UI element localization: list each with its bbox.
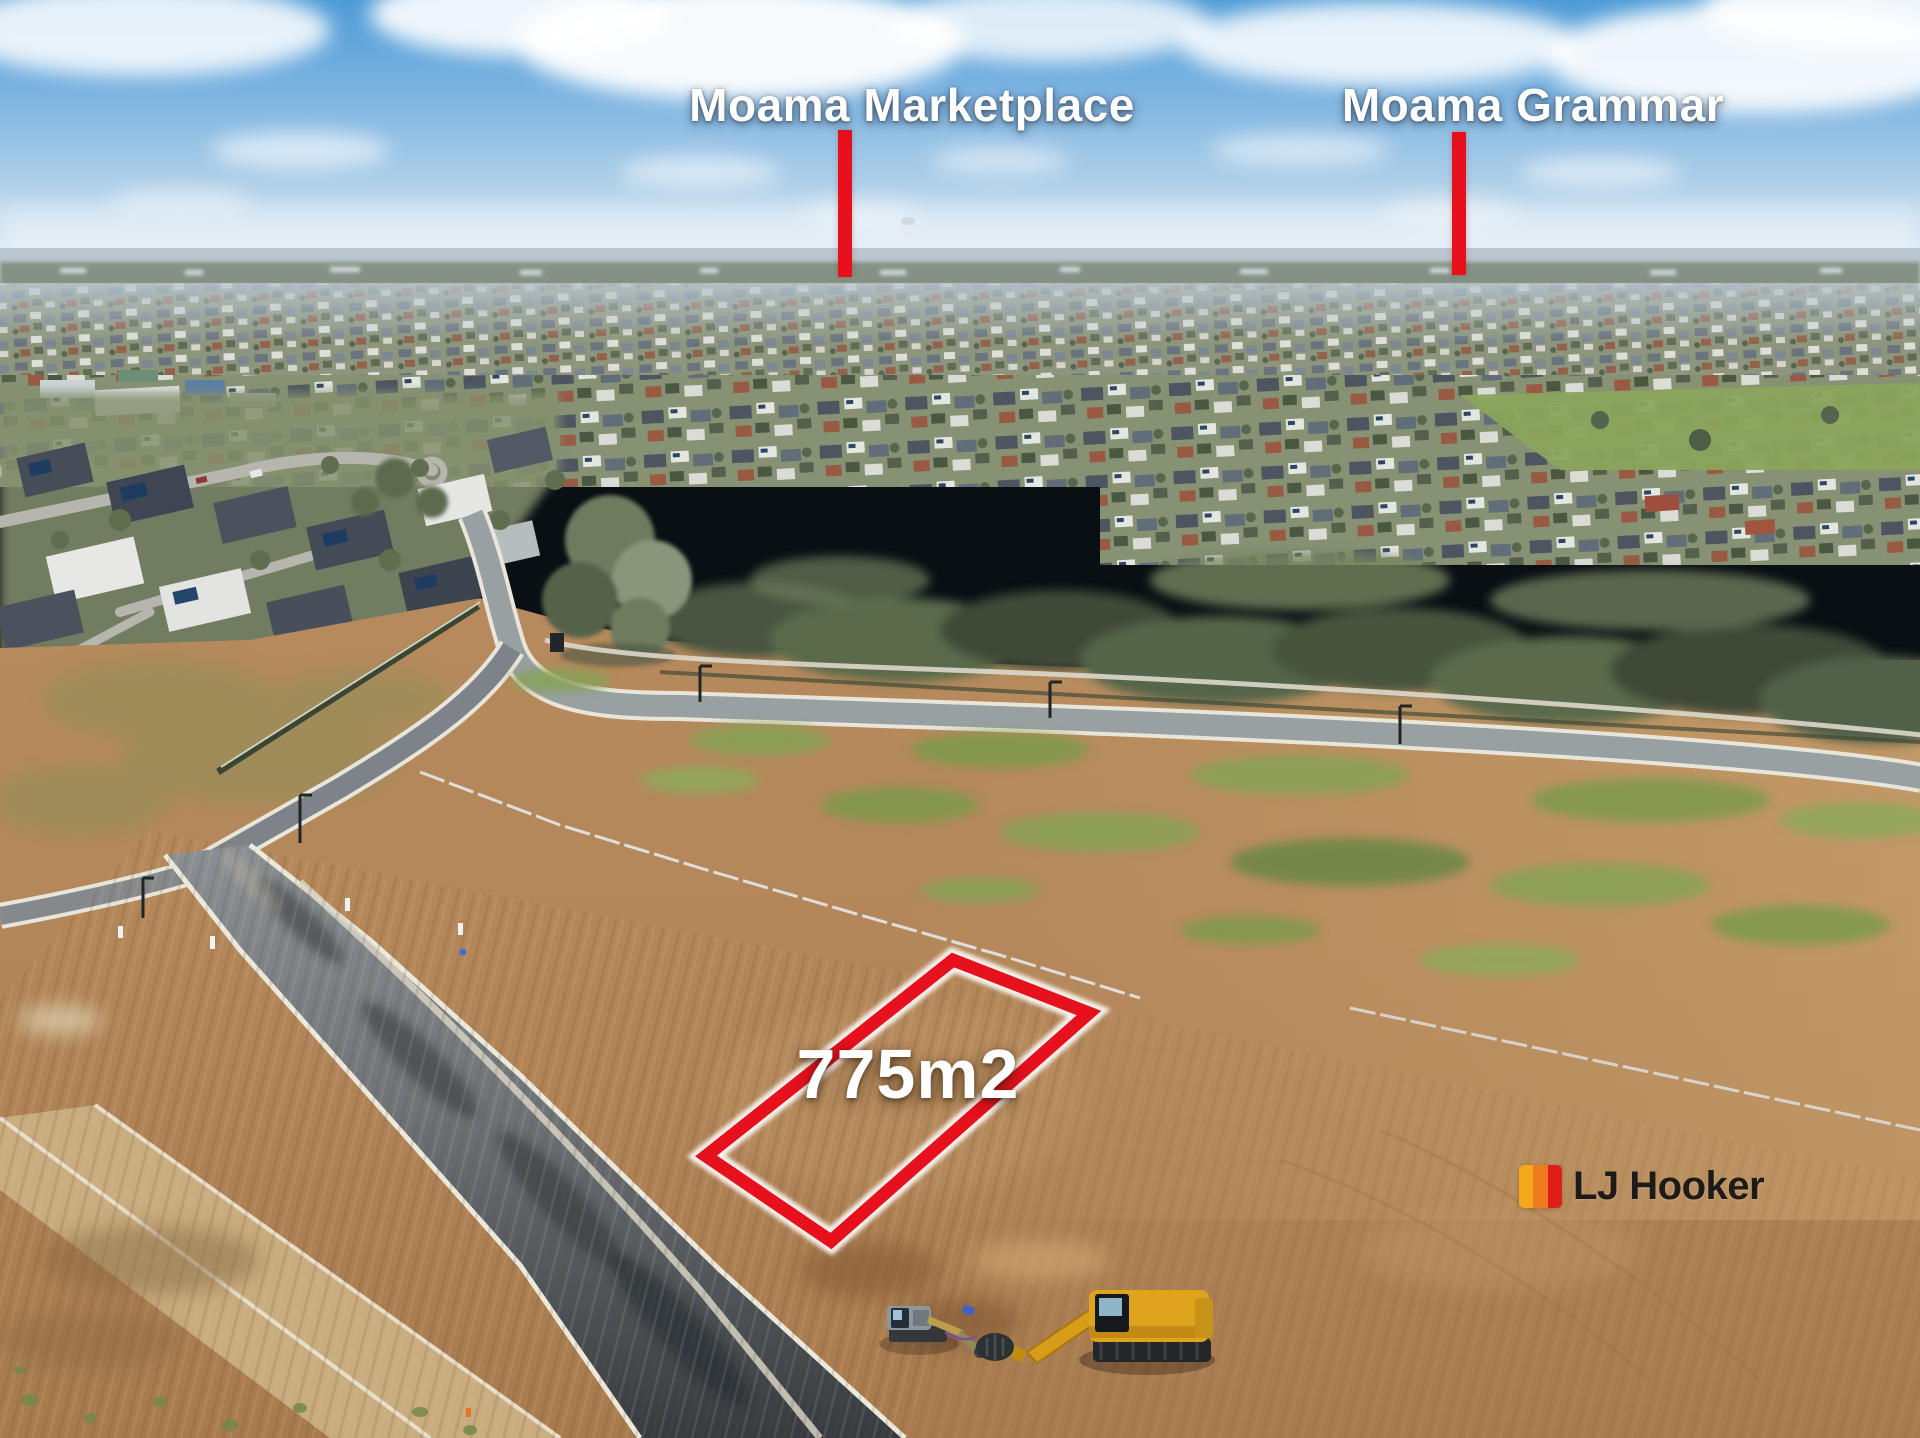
- marker-line-moama-marketplace: [838, 130, 852, 277]
- lj-hooker-logo-text: LJ Hooker: [1573, 1164, 1764, 1209]
- real-estate-aerial-photo: { "annotations": { "marker_color": "#e71…: [0, 0, 1920, 1438]
- logo-bar-orange: [1533, 1165, 1547, 1208]
- aerial-photo-background: [0, 0, 1920, 1438]
- lj-hooker-logo: LJ Hooker: [1519, 1164, 1764, 1209]
- logo-bar-yellow: [1519, 1165, 1533, 1208]
- marker-label-moama-marketplace: Moama Marketplace: [689, 78, 1135, 132]
- marker-label-moama-grammar: Moama Grammar: [1342, 78, 1724, 132]
- lj-hooker-logo-icon: [1519, 1165, 1562, 1208]
- lot-area-label: 775m2: [797, 1034, 1020, 1114]
- logo-bar-red: [1548, 1165, 1562, 1208]
- marker-line-moama-grammar: [1452, 132, 1466, 275]
- water-tower: [901, 217, 915, 238]
